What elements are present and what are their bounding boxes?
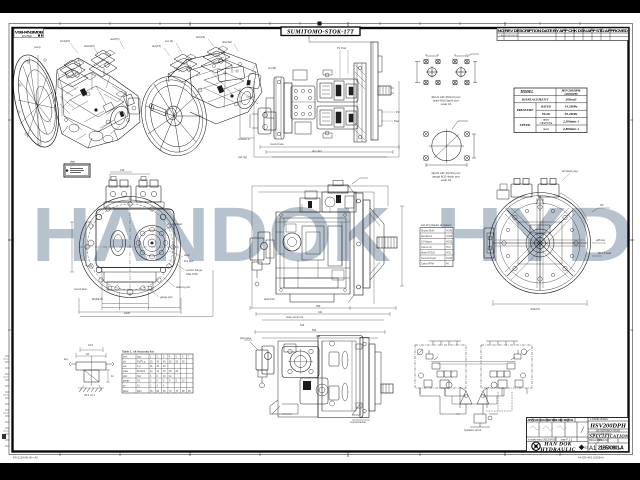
svg-text:HSV200DPH: HSV200DPH: [589, 422, 627, 429]
svg-text:Pa2: Pa2: [394, 119, 399, 123]
svg-text:Idemitsu a: Idemitsu a: [421, 235, 433, 238]
svg-text:type: type: [137, 356, 142, 359]
svg-text:self-priming: self-priming: [539, 122, 553, 125]
svg-text:Pa1: Pa1: [137, 376, 142, 378]
svg-text:356: 356: [316, 304, 321, 308]
svg-text:PRESSURE: PRESSURE: [517, 108, 535, 112]
svg-text:front(P1): front(P1): [60, 39, 70, 43]
svg-text:scale 1/2: scale 1/2: [441, 102, 452, 106]
svg-text:441: 441: [318, 310, 323, 314]
svg-text:M10: M10: [137, 391, 142, 393]
svg-text:V98·RN3M0B: V98·RN3M0B: [15, 29, 44, 34]
svg-text:General super: General super: [421, 257, 436, 260]
svg-text:PEAK: PEAK: [542, 112, 551, 116]
svg-text:VG32: VG32: [446, 241, 453, 244]
svg-text:ø236: ø236: [124, 311, 130, 315]
svg-text:462: 462: [316, 334, 321, 338]
svg-text:suc.: suc.: [123, 366, 128, 368]
svg-text:drain Dr2: drain Dr2: [264, 297, 275, 301]
svg-text:scale 1/2: scale 1/2: [441, 178, 452, 182]
svg-text:2,300min-1: 2,300min-1: [562, 119, 579, 123]
svg-text:(A) (B): (A) (B): [268, 66, 276, 70]
svg-text:VG9: VG9: [446, 252, 451, 255]
svg-text:Table 1. oil viscosity list: Table 1. oil viscosity list: [122, 350, 154, 354]
svg-text:1 A0215 REVISION: 1 A0215 REVISION: [499, 34, 519, 37]
svg-text:MAX: MAX: [542, 128, 549, 131]
svg-text:key: key: [64, 357, 69, 361]
svg-text:VG7: VG7: [446, 246, 451, 249]
svg-text:E3: E3: [585, 446, 589, 450]
svg-text:S p.: S p.: [137, 366, 141, 368]
svg-text:Cosmo oil: Cosmo oil: [421, 246, 432, 249]
svg-text:21B5X0801-A: 21B5X0801-A: [598, 445, 624, 451]
svg-text:RATED: RATED: [541, 105, 552, 109]
svg-text:SPEED: SPEED: [520, 123, 531, 127]
svg-text:hydraulic circuit: hydraulic circuit: [464, 429, 482, 432]
svg-text:25.4 +0.1: 25.4 +0.1: [84, 393, 95, 397]
svg-text:a NAME MODEL: a NAME MODEL: [590, 418, 609, 421]
svg-text:200cm3: 200cm3: [565, 97, 577, 101]
svg-text:SUMITOMO-STOK-17T: SUMITOMO-STOK-17T: [287, 29, 354, 36]
svg-text:drain: drain: [184, 253, 190, 257]
svg-text:air: air: [123, 384, 126, 387]
svg-text:DISPLACEMENT: DISPLACEMENT: [521, 97, 549, 101]
svg-text:P1 Pa1: P1 Pa1: [337, 46, 347, 50]
svg-text:SAE J518: SAE J518: [186, 272, 198, 276]
svg-text:mount face: mount face: [74, 287, 87, 291]
svg-text:gauge M10 depth port: gauge M10 depth port: [432, 175, 460, 179]
svg-text:JX Nippon: JX Nippon: [421, 241, 433, 244]
svg-text:VG10: VG10: [446, 257, 453, 260]
svg-text:air bleed: air bleed: [172, 222, 183, 226]
svg-text:DWG NO: DWG NO: [599, 440, 609, 442]
svg-text:07-JYW-8: 07-JYW-8: [22, 35, 32, 38]
svg-text:suction flange: suction flange: [186, 268, 203, 272]
svg-text:suction S: suction S: [238, 137, 250, 141]
svg-text:132: 132: [120, 168, 125, 172]
svg-text:allow: allow: [123, 391, 129, 393]
svg-text:pilot valve: pilot valve: [240, 337, 252, 340]
svg-text:drain(P2): drain(P2): [84, 44, 95, 48]
svg-text:VG46: VG46: [446, 230, 453, 233]
svg-text:mount face: mount face: [270, 142, 284, 146]
svg-text:drain(Dr): drain(Dr): [222, 40, 232, 44]
svg-text:NO REV DESCRIPTION DATE BY APP: NO REV DESCRIPTION DATE BY APP CHK DSN A…: [498, 28, 629, 33]
svg-text:(200NDPH): (200NDPH): [564, 93, 577, 96]
svg-text:Dr1 port: Dr1 port: [184, 259, 194, 263]
svg-text:34.3MPa: 34.3MPa: [564, 105, 578, 109]
svg-text:delivery port: delivery port: [176, 285, 190, 289]
svg-text:pump: pump: [34, 46, 41, 49]
svg-text:45°: 45°: [600, 203, 604, 207]
svg-text:(SUMITOMO-STOK): (SUMITOMO-STOK): [596, 429, 620, 432]
svg-text:A1: A1: [589, 446, 597, 452]
svg-text:44.5: 44.5: [88, 343, 94, 347]
svg-text:ø25 key: ø25 key: [596, 238, 606, 242]
svg-text:del.: del.: [123, 361, 127, 363]
svg-text:P/N 1134-0B +B +:AC: P/N 1134-0B +B +:AC: [13, 456, 38, 460]
svg-text:524: 524: [300, 323, 305, 327]
svg-text:List of hydraulic oil makers: List of hydraulic oil makers: [421, 223, 452, 227]
svg-text:MODEL: MODEL: [520, 90, 535, 94]
svg-text:P1/P2 p: P1/P2 p: [137, 361, 146, 363]
svg-text:2,800min-1: 2,800min-1: [562, 127, 579, 131]
svg-text:Showa Shell: Showa Shell: [421, 230, 435, 233]
svg-text:hose mount ok: hose mount ok: [286, 315, 304, 319]
svg-text:rear(P2): rear(P2): [110, 37, 120, 41]
svg-text:suc.(S): suc.(S): [165, 39, 173, 43]
svg-text:APP CHK DSG DRW MDE SEC MGR SL: APP CHK DSG DRW MDE SEC MGR SL: [528, 418, 574, 422]
svg-text:drain M10 depth port: drain M10 depth port: [433, 99, 459, 103]
svg-text:(ø344.5): (ø344.5): [530, 307, 540, 311]
svg-text:plate: plate: [70, 161, 76, 164]
svg-text:dim 441: dim 441: [312, 149, 322, 153]
svg-text:(ref. fig): (ref. fig): [238, 155, 247, 159]
svg-text:item: item: [123, 356, 127, 359]
svg-text:A4 297×420 (1/2594+): A4 297×420 (1/2594+): [578, 456, 604, 460]
svg-text:air bleed plug: air bleed plug: [562, 169, 578, 173]
svg-text:524: 524: [312, 328, 317, 332]
svg-text:del.(P1): del.(P1): [152, 44, 161, 48]
svg-text:mount bracket: mount bracket: [350, 421, 366, 424]
svg-text:M12 thread: M12 thread: [598, 251, 612, 255]
svg-text:Mobil DTE25: Mobil DTE25: [421, 252, 435, 255]
svg-text:del.(P2): del.(P2): [196, 35, 205, 39]
svg-text:gauge: gauge: [123, 381, 130, 383]
svg-text:P2: P2: [396, 110, 400, 114]
svg-text:MADE IN: MADE IN: [92, 297, 103, 301]
svg-text:SPECIFICATION: SPECIFICATION: [589, 434, 629, 439]
svg-text:39.2MPa: 39.2MPa: [564, 112, 578, 116]
svg-text:VG56: VG56: [446, 235, 453, 238]
svg-text:Caltex RPM: Caltex RPM: [421, 263, 434, 266]
svg-text:pilot: pilot: [123, 375, 128, 378]
svg-text:drain: drain: [123, 370, 129, 373]
svg-text:HYDRAULIC: HYDRAULIC: [539, 447, 575, 453]
svg-text:Dr1/Dr2: Dr1/Dr2: [137, 370, 146, 373]
svg-text:gauge port: gauge port: [160, 295, 173, 299]
